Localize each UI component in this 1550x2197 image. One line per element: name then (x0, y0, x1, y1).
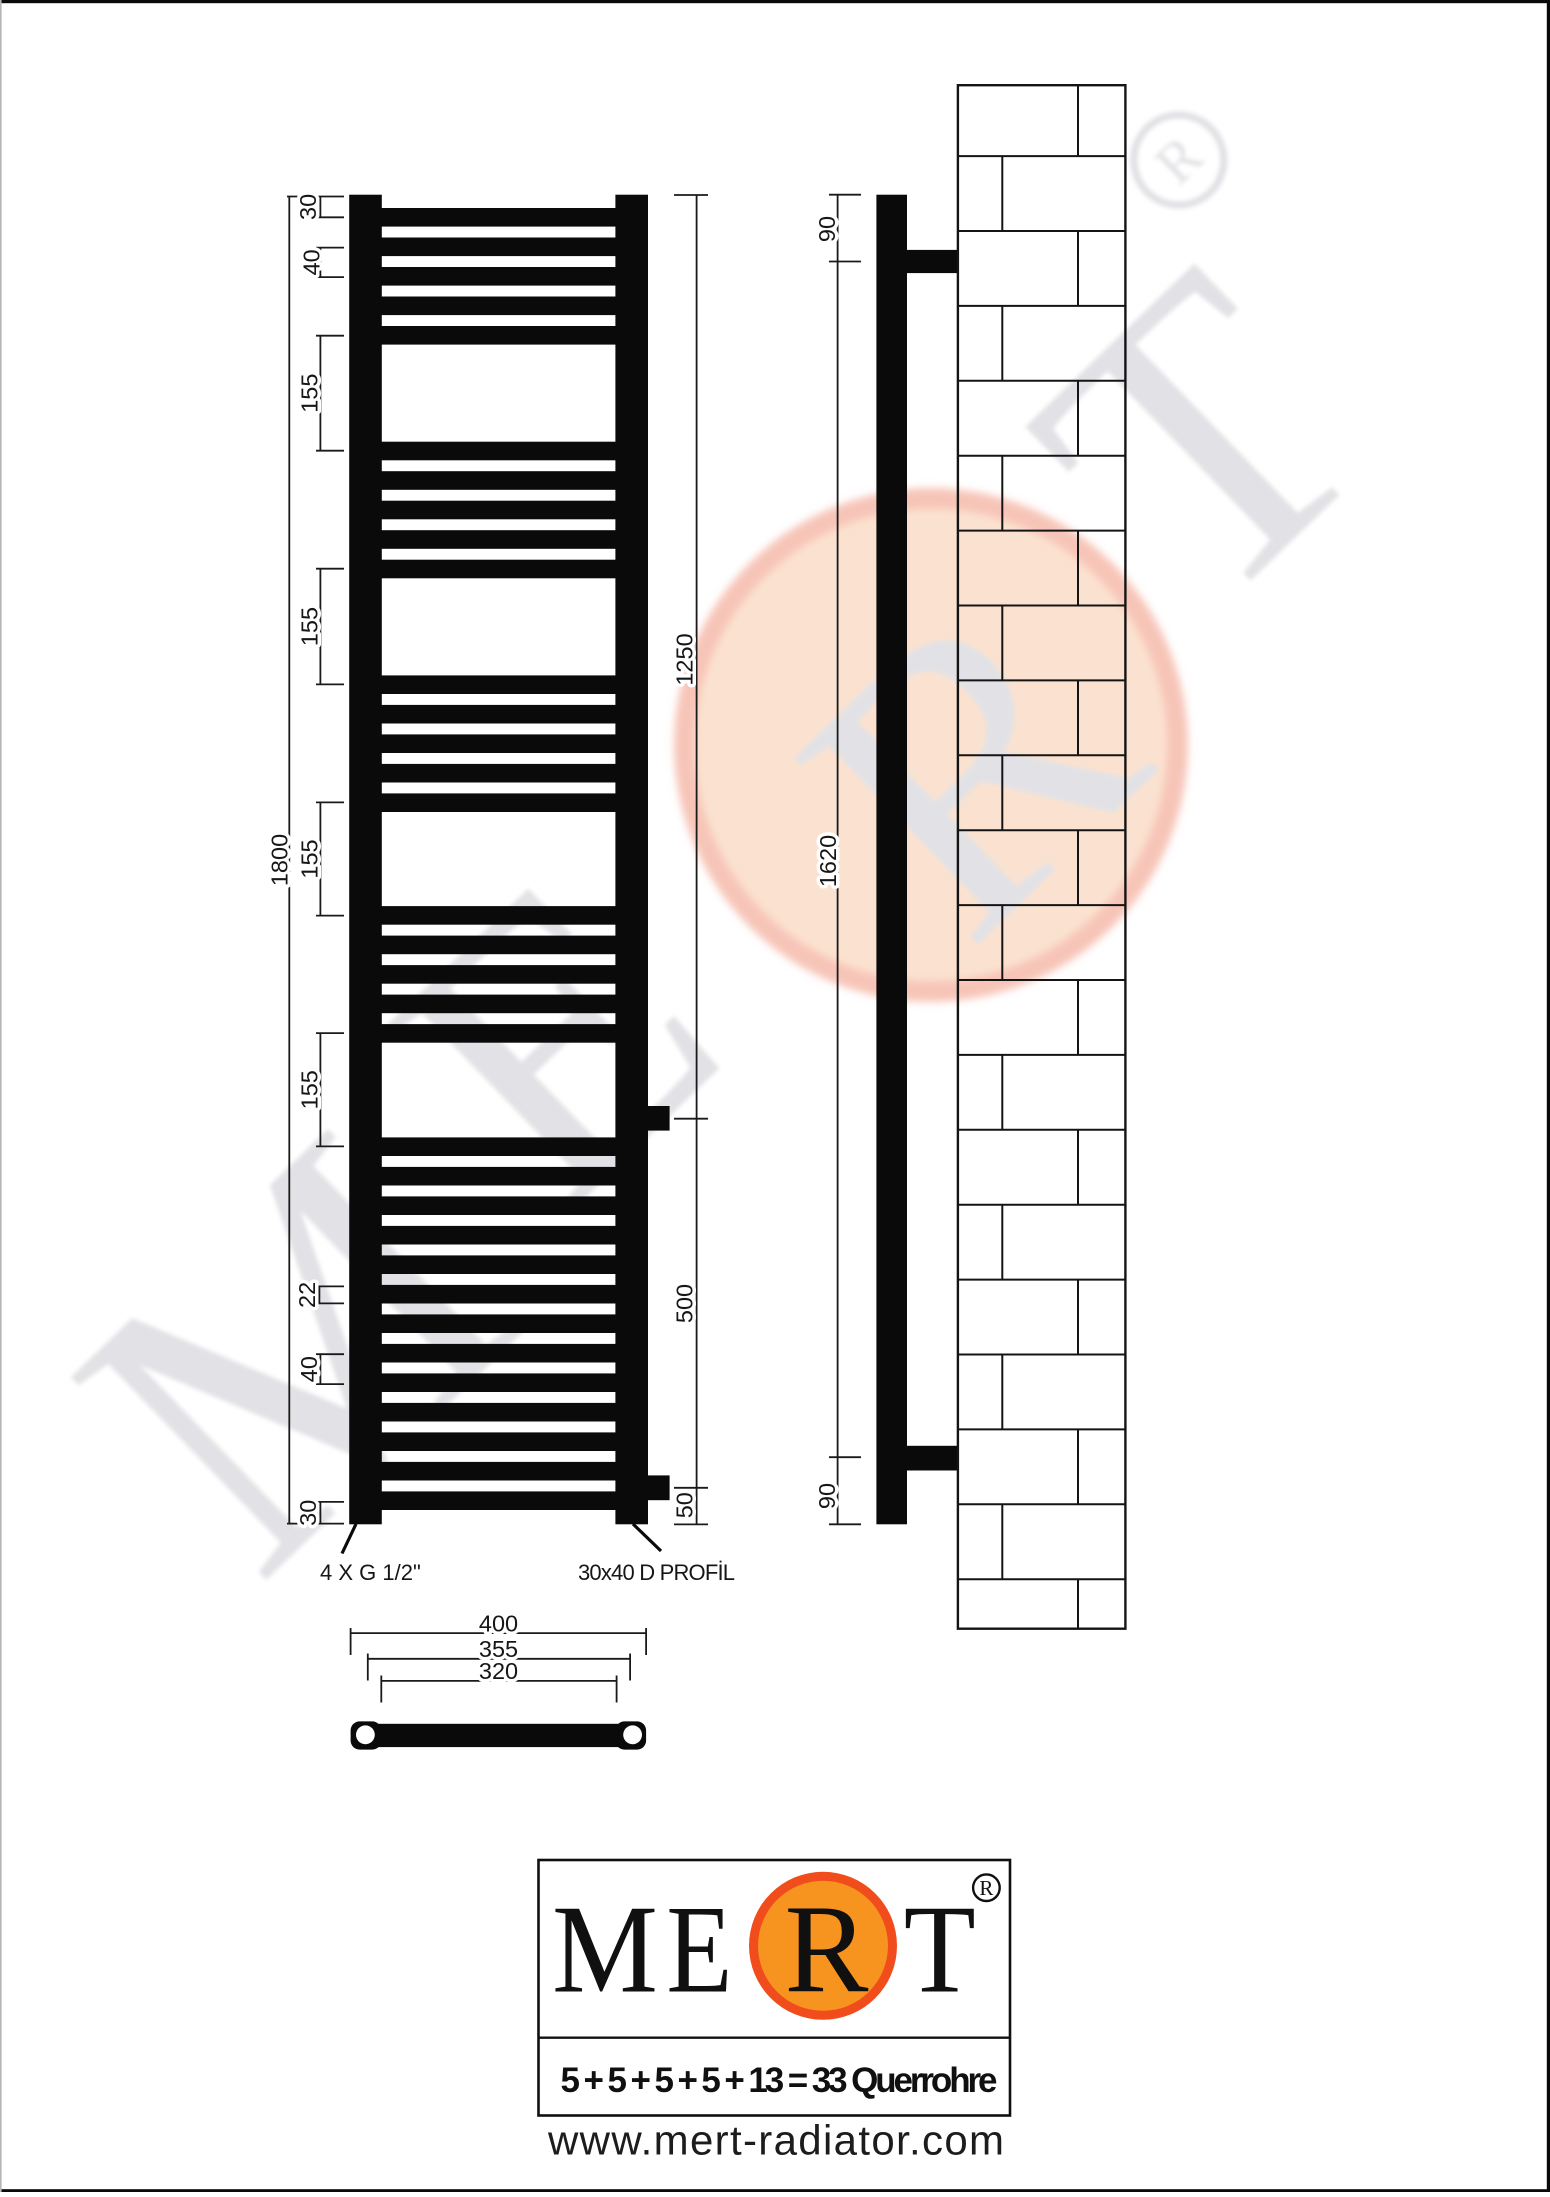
svg-text:1250: 1250 (672, 633, 698, 685)
svg-text:155: 155 (297, 1070, 323, 1109)
svg-text:M: M (552, 1880, 658, 2019)
svg-text:R: R (979, 1876, 993, 1900)
svg-text:155: 155 (297, 607, 323, 646)
svg-text:500: 500 (672, 1284, 698, 1323)
svg-text:400: 400 (479, 1611, 518, 1637)
svg-text:50: 50 (672, 1492, 698, 1518)
svg-text:40: 40 (296, 1356, 322, 1382)
svg-text:1800: 1800 (267, 834, 293, 886)
svg-text:155: 155 (297, 374, 323, 413)
svg-text:30x40 D PROFİL: 30x40 D PROFİL (578, 1560, 735, 1585)
svg-text:30: 30 (295, 194, 321, 220)
svg-text:1620: 1620 (815, 835, 841, 887)
svg-text:30: 30 (295, 1500, 321, 1526)
svg-text:22: 22 (294, 1282, 320, 1308)
svg-text:155: 155 (297, 839, 323, 878)
svg-text:40: 40 (299, 249, 325, 275)
svg-text:4 X G 1/2": 4 X G 1/2" (320, 1560, 421, 1585)
svg-text:www.mert-radiator.com: www.mert-radiator.com (547, 2117, 1004, 2164)
svg-text:5 + 5 + 5 + 5 + 13 = 33 Querro: 5 + 5 + 5 + 5 + 13 = 33 Querrohre (561, 2061, 998, 2100)
svg-text:T: T (904, 1880, 976, 2019)
svg-text:320: 320 (479, 1658, 518, 1684)
svg-text:R: R (785, 1880, 869, 2019)
svg-text:E: E (666, 1880, 732, 2019)
svg-text:90: 90 (814, 216, 840, 242)
svg-text:90: 90 (814, 1483, 840, 1509)
